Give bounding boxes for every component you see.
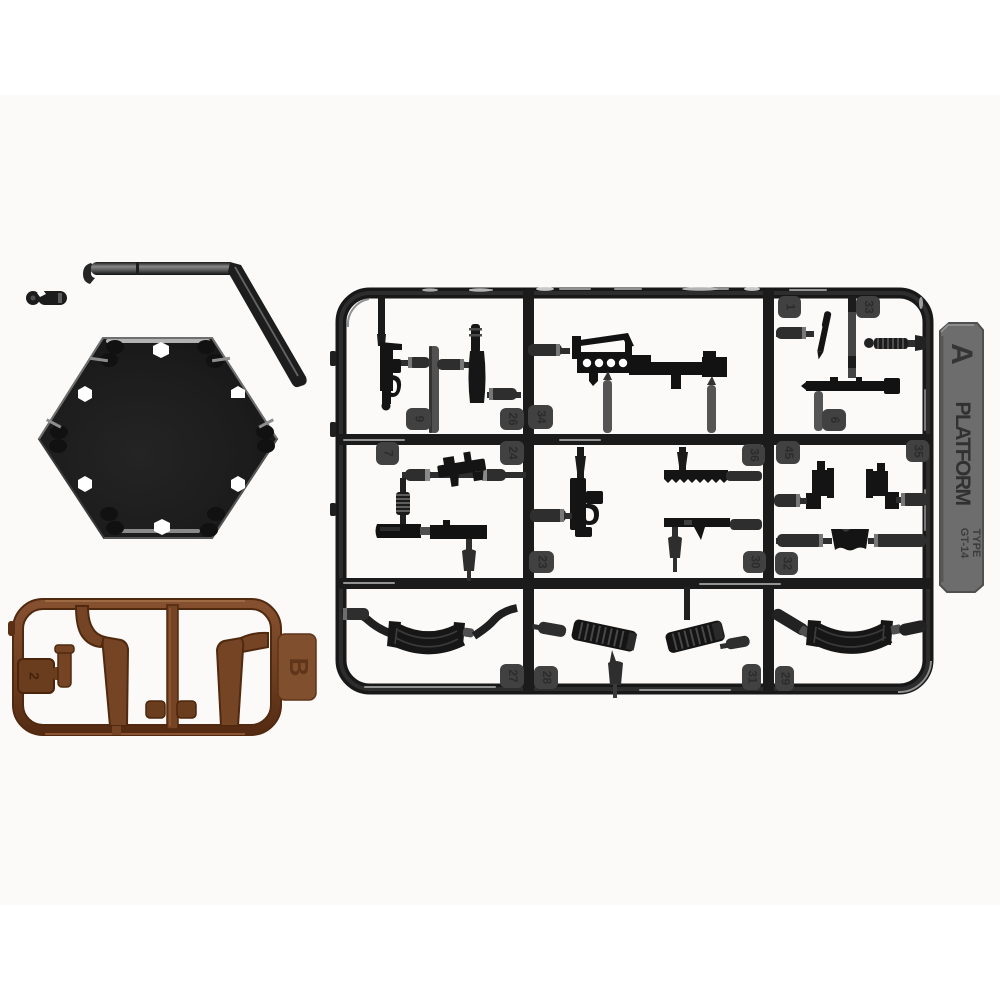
svg-text:30: 30: [748, 555, 762, 569]
svg-text:35: 35: [911, 444, 925, 458]
svg-text:31: 31: [745, 670, 759, 684]
svg-text:33: 33: [862, 300, 876, 314]
svg-text:2: 2: [26, 672, 42, 680]
svg-text:GT-14: GT-14: [958, 528, 970, 559]
svg-text:TYPE: TYPE: [970, 529, 982, 558]
svg-text:6: 6: [828, 417, 842, 424]
svg-text:28: 28: [540, 671, 554, 685]
svg-text:24: 24: [506, 446, 520, 460]
svg-text:27: 27: [506, 669, 520, 683]
svg-text:PLATFORM: PLATFORM: [951, 401, 974, 505]
svg-text:36: 36: [747, 448, 761, 462]
svg-text:9: 9: [412, 416, 426, 423]
svg-text:7: 7: [381, 450, 395, 457]
svg-text:34: 34: [534, 410, 548, 424]
svg-text:1: 1: [783, 304, 797, 311]
svg-text:45: 45: [782, 446, 796, 460]
svg-text:32: 32: [780, 557, 794, 571]
svg-text:A: A: [945, 343, 978, 365]
svg-text:B: B: [284, 658, 314, 677]
svg-text:23: 23: [535, 555, 549, 569]
svg-text:29: 29: [778, 672, 792, 686]
svg-text:26: 26: [506, 412, 520, 426]
